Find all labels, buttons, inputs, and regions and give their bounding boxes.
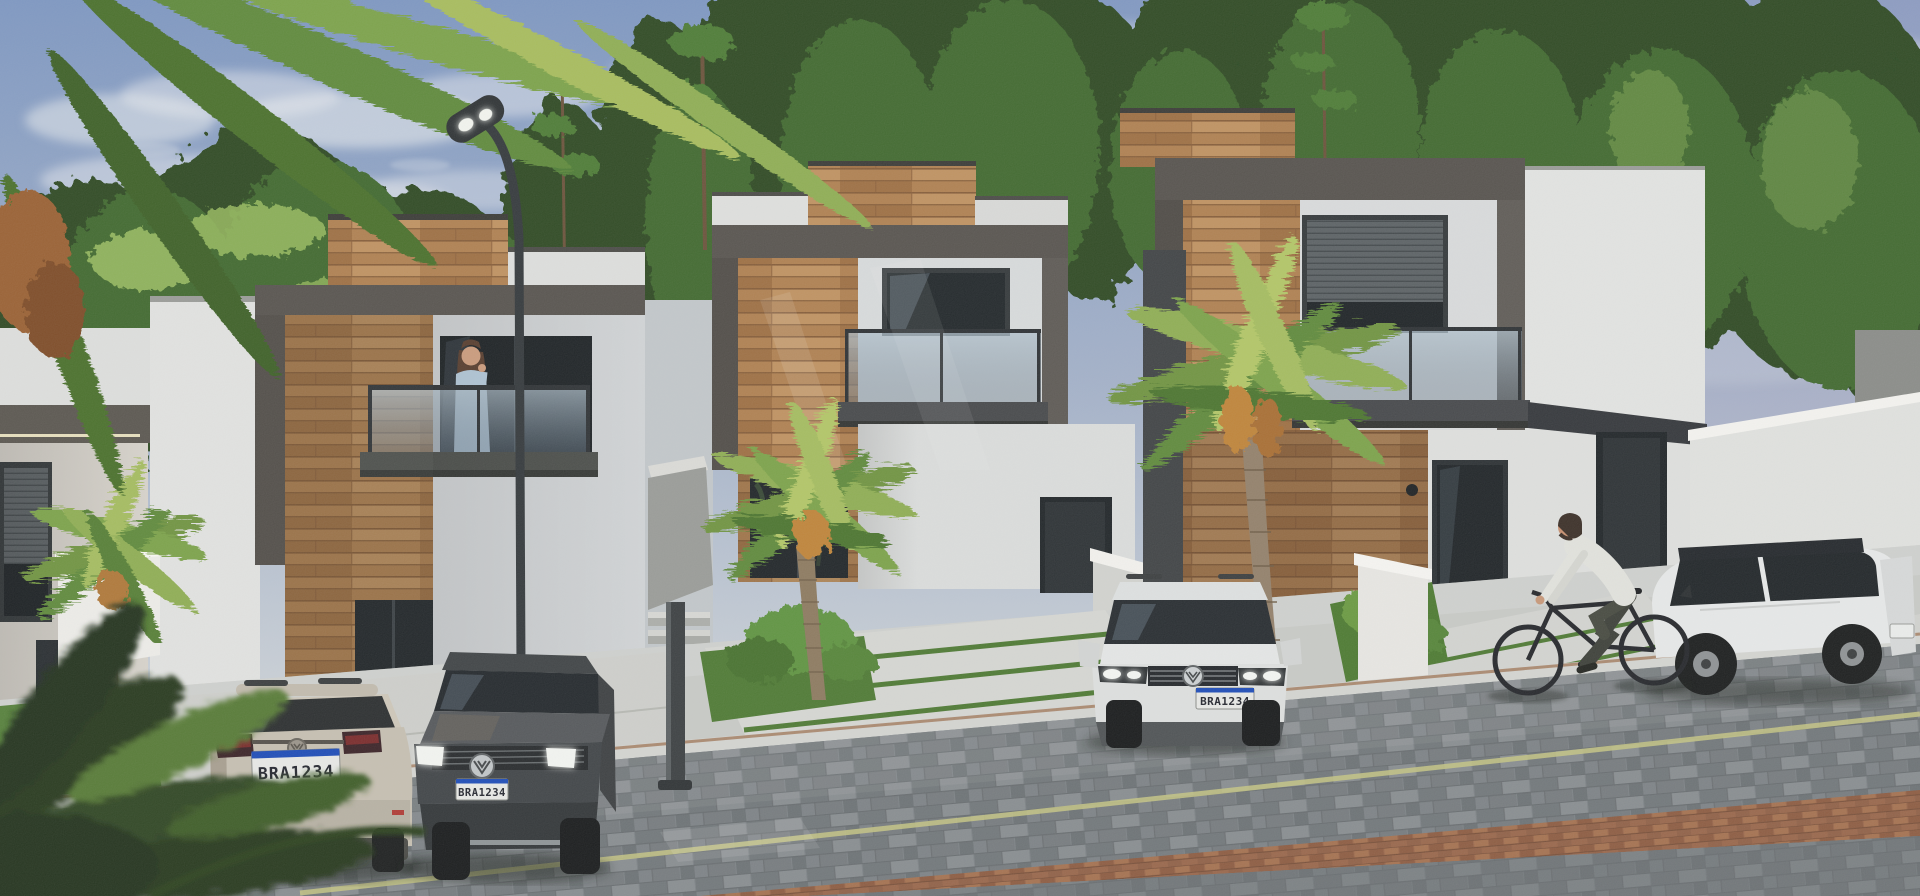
- rendered-photo-stage: BRA1234 BRA1234: [0, 0, 1920, 896]
- film-grain-overlay: [0, 0, 1920, 896]
- street-scene: BRA1234 BRA1234: [0, 0, 1920, 896]
